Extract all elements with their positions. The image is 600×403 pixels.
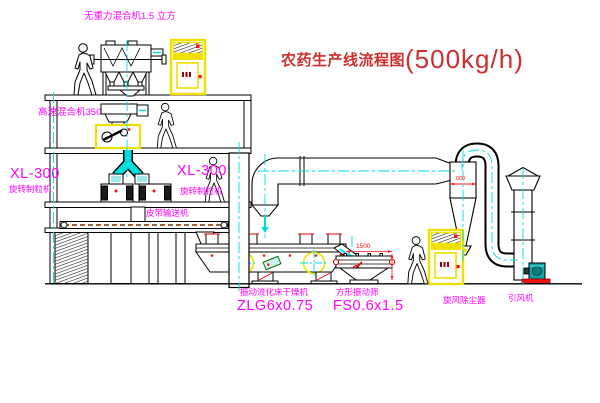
person-figure (408, 237, 428, 284)
person-figure (74, 44, 96, 95)
label-dryer-model: ZLG6x0.75 (237, 299, 313, 314)
granulator-left (101, 174, 133, 202)
belt-conveyor (60, 222, 228, 229)
granulator-discharge-chute (131, 207, 145, 222)
label-high-speed-mixer: 高速混合机350 (38, 108, 101, 118)
dim-cyclone-diameter: 600 (456, 177, 465, 183)
label-sieve-name: 方形振动筛 (336, 288, 379, 297)
label-granulator-left-name: 旋转制粒机 (9, 185, 52, 194)
label-granulator-left-model: XL-300 (10, 167, 60, 182)
label-gravity-free-mixer: 无重力混合机1.5 立方 (84, 12, 176, 22)
label-sieve-model: FS0.6x1.5 (333, 299, 404, 314)
control-cabinet-2 (429, 230, 463, 284)
control-cabinet-1 (171, 40, 205, 94)
gravity-free-mixer (90, 41, 166, 96)
label-fan: 引风机 (508, 294, 534, 303)
fluid-bed-dryer (196, 234, 346, 284)
person-figure (157, 103, 176, 148)
upper-right-column (244, 100, 251, 153)
label-granulator-center-model: XL-300 (177, 164, 227, 179)
roof-slab (45, 95, 251, 101)
label-belt-conveyor: 皮带输送机 (146, 209, 189, 218)
pier (111, 233, 131, 284)
title-text: 农药生产线流程图 (281, 49, 405, 70)
exhaust-duct (252, 156, 452, 233)
dim-sieve-length: 1500 (356, 244, 370, 251)
floor3-slab (45, 202, 251, 208)
label-dryer-name: 振动流化床干燥机 (240, 288, 308, 297)
high-speed-mixer (96, 104, 148, 148)
dryer-top-ports (204, 234, 342, 244)
granulator-right (135, 174, 171, 202)
hatched-pier (55, 233, 88, 284)
label-cyclone: 旋风除尘器 (443, 296, 486, 305)
floor2-slab (45, 148, 251, 154)
label-granulator-center-name: 旋转制粒机 (180, 187, 223, 196)
pier (149, 233, 158, 284)
title-capacity: (500kg/h) (405, 44, 524, 75)
drawing-title: 农药生产线流程图(500kg/h) (281, 44, 524, 75)
pier (176, 233, 185, 284)
cad-flow-diagram: 农药生产线流程图(500kg/h) 无重力混合机1.5 立方 高速混合机350 … (0, 0, 600, 403)
